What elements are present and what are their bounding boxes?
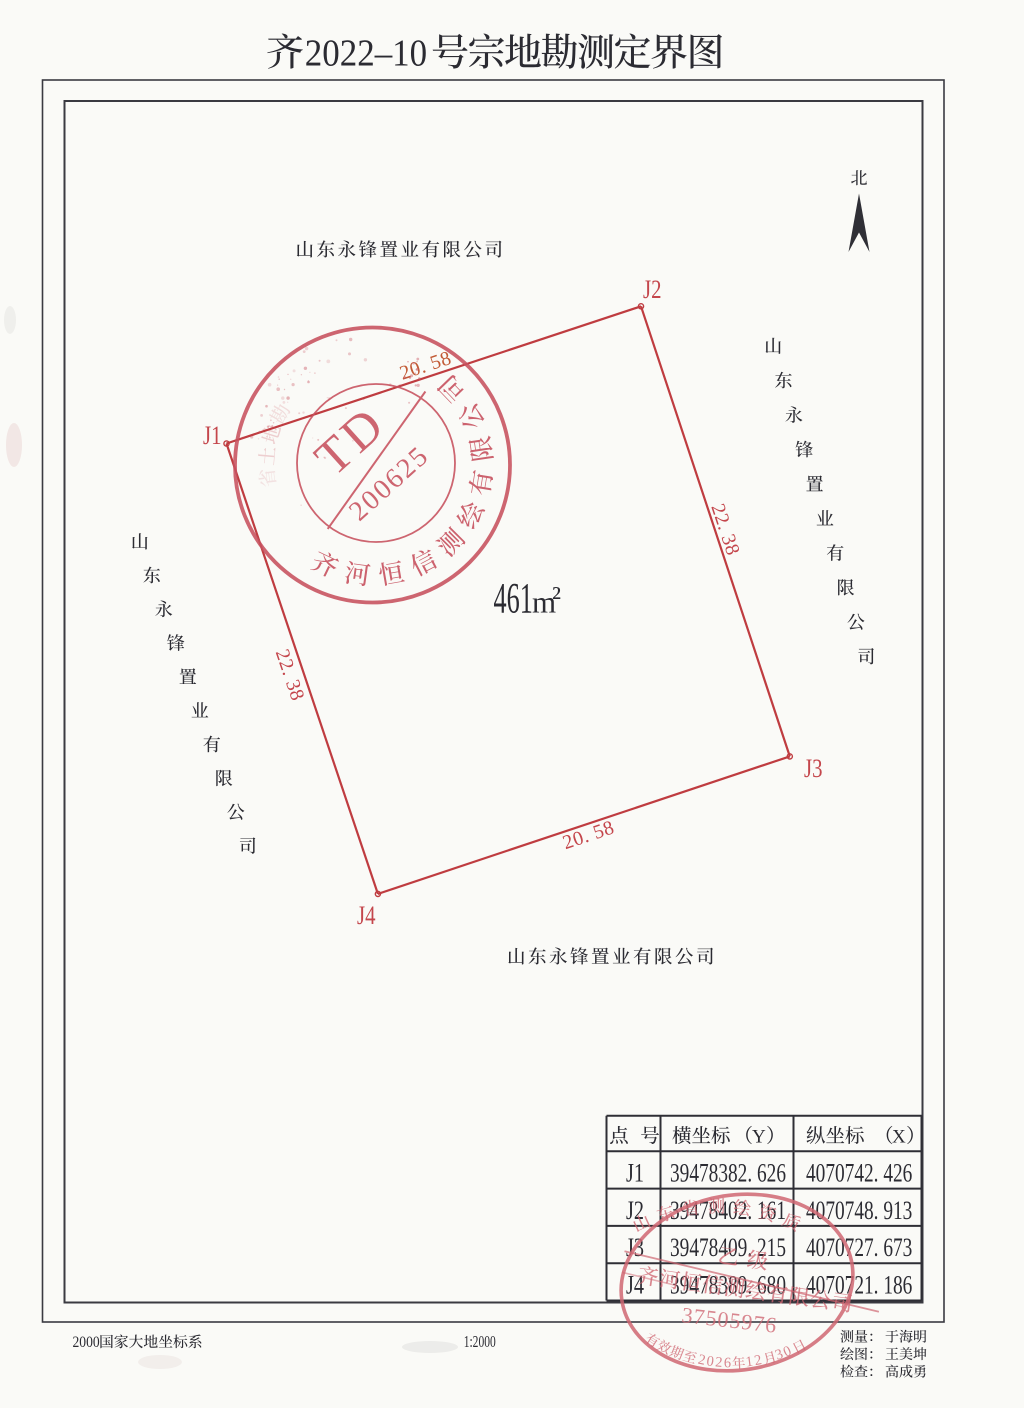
svg-text:461: 461	[494, 574, 533, 622]
svg-text:4070742. 426: 4070742. 426	[806, 1159, 912, 1189]
svg-text:6: 6	[724, 1355, 732, 1371]
svg-text:4070727. 673: 4070727. 673	[806, 1233, 912, 1263]
svg-text:Y: Y	[752, 1126, 766, 1147]
svg-text:39478382. 626: 39478382. 626	[670, 1159, 786, 1189]
svg-text:4070748. 913: 4070748. 913	[806, 1196, 912, 1226]
svg-text:2000: 2000	[73, 1334, 100, 1351]
svg-text:2022–10: 2022–10	[305, 31, 427, 74]
svg-text:J4: J4	[357, 902, 376, 931]
svg-text:J1: J1	[626, 1159, 644, 1188]
svg-text:J2: J2	[643, 276, 661, 305]
svg-text:X: X	[892, 1126, 906, 1147]
svg-text:1:2000: 1:2000	[464, 1333, 496, 1352]
svg-text:2: 2	[715, 1354, 724, 1371]
svg-text:J3: J3	[804, 755, 822, 784]
svg-text:J1: J1	[203, 422, 221, 451]
svg-text:4070721. 186: 4070721. 186	[806, 1271, 912, 1301]
svg-text:²: ²	[552, 581, 561, 614]
